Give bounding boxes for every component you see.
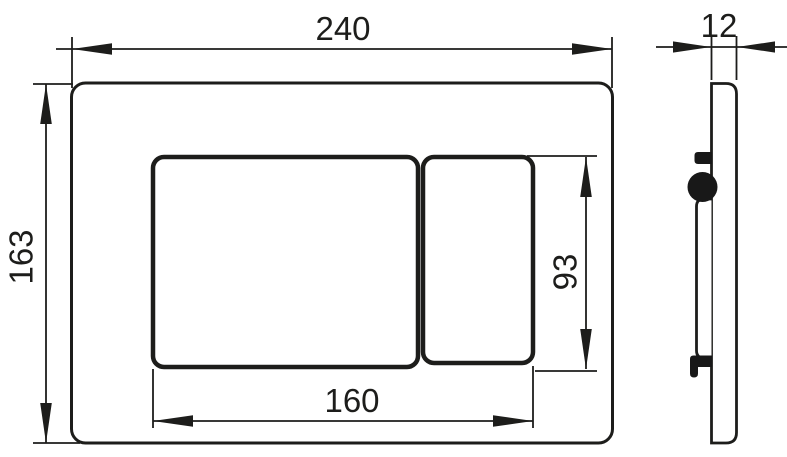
upper-clip-icon: [695, 152, 713, 164]
drawing-svg: 240 163 93 160: [0, 0, 787, 457]
dimension-label-front-height: 163: [3, 229, 40, 284]
technical-drawing-canvas: 240 163 93 160: [0, 0, 787, 457]
side-view: [688, 84, 737, 444]
large-flush-button: [153, 157, 418, 367]
dimension-label-button-width: 160: [324, 382, 379, 419]
lower-clip-hook-icon: [690, 356, 712, 378]
arrowhead-right-icon: [572, 43, 612, 55]
arrowhead-down-icon: [40, 403, 52, 443]
arrowhead-left-icon: [737, 41, 775, 52]
locking-knob-icon: [688, 172, 718, 202]
dimension-front-width: 240: [56, 10, 612, 88]
small-flush-button: [423, 157, 533, 363]
dimension-front-height: 163: [3, 84, 81, 443]
dimension-side-thickness: 12: [656, 7, 787, 80]
plate-profile: [712, 84, 737, 444]
arrowhead-up-icon: [40, 84, 52, 124]
dimension-label-side-thickness: 12: [701, 7, 738, 44]
mounting-frame-arm: [697, 199, 712, 358]
arrowhead-left-icon: [72, 43, 112, 55]
dimension-label-button-height: 93: [547, 254, 584, 291]
dimension-label-front-width: 240: [315, 10, 370, 47]
